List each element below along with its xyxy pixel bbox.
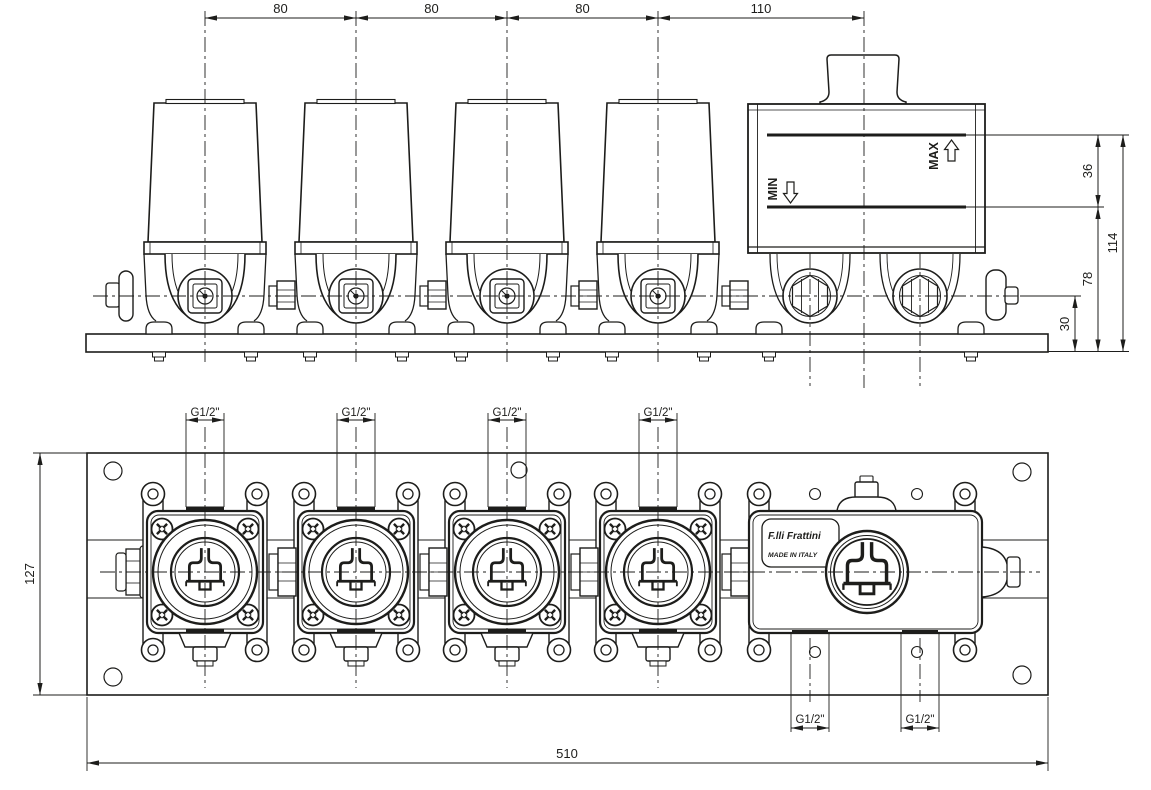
front-view: F.lli Frattini MADE IN ITALY [22, 407, 1048, 771]
dim-max-to-min: 36 [1080, 164, 1095, 178]
dim-spacing-1: 80 [273, 1, 287, 16]
plate-hole [1013, 666, 1031, 684]
plate-hole-small [810, 647, 821, 658]
dim-plate-height: 127 [22, 563, 37, 585]
coupling-side-3 [571, 281, 597, 309]
top-spacing-dimensions: 80 80 80 110 [205, 1, 864, 18]
plate-height-dimension: 127 [22, 453, 90, 695]
mixer-box-side [748, 104, 985, 253]
valve-assembly-drawing: MAX MIN 80 80 80 110 [0, 0, 1151, 790]
dim-spacing-3: 80 [575, 1, 589, 16]
mixer-right-plug-cap [1005, 287, 1018, 304]
brand-label: F.lli Frattini [768, 531, 821, 542]
coupling-side-2 [420, 281, 446, 309]
dim-spacing-4: 110 [751, 1, 772, 16]
plate-hole [104, 462, 122, 480]
plate-hole [511, 462, 527, 478]
mixer-right-plug-dome [986, 270, 1006, 320]
thread-dim-outlet-1: G1/2" [791, 714, 829, 728]
mixer-cap-side [820, 55, 906, 104]
thread-dim-outlet-2: G1/2" [901, 714, 939, 728]
plate-hole [104, 668, 122, 686]
mixer-spindle [855, 482, 878, 498]
svg-text:G1/2": G1/2" [492, 407, 521, 419]
mounting-plate-side [86, 334, 1048, 352]
made-in-italy-label: MADE IN ITALY [768, 552, 819, 559]
svg-text:G1/2": G1/2" [190, 407, 219, 419]
dim-overall-height: 114 [1105, 233, 1120, 254]
mixer-spindle-flange [837, 497, 896, 511]
plate-width-dimension: 510 [87, 697, 1048, 771]
side-elevation-view: MAX MIN 80 80 80 110 [86, 1, 1129, 388]
svg-text:G1/2": G1/2" [795, 714, 824, 726]
dim-spacing-2: 80 [424, 1, 438, 16]
svg-text:G1/2": G1/2" [643, 407, 672, 419]
coupling-side-4 [722, 281, 748, 309]
dim-min-to-base: 78 [1080, 272, 1095, 286]
min-label: MIN [766, 178, 780, 201]
coupling-side-1 [269, 281, 295, 309]
plate-hole [1013, 463, 1031, 481]
mixer-side: MAX MIN [748, 55, 1018, 361]
technical-drawing-sheet: MAX MIN 80 80 80 110 [0, 0, 1151, 790]
plate-hole-small [912, 647, 923, 658]
plate-hole-small [912, 489, 923, 500]
max-label: MAX [927, 141, 941, 169]
dim-plate-width: 510 [556, 746, 578, 761]
svg-text:G1/2": G1/2" [905, 714, 934, 726]
svg-text:G1/2": G1/2" [341, 407, 370, 419]
plate-hole-small [810, 489, 821, 500]
dim-axis-to-base: 30 [1057, 317, 1072, 331]
thread-dimensions-bottom: G1/2" G1/2" [791, 714, 939, 728]
